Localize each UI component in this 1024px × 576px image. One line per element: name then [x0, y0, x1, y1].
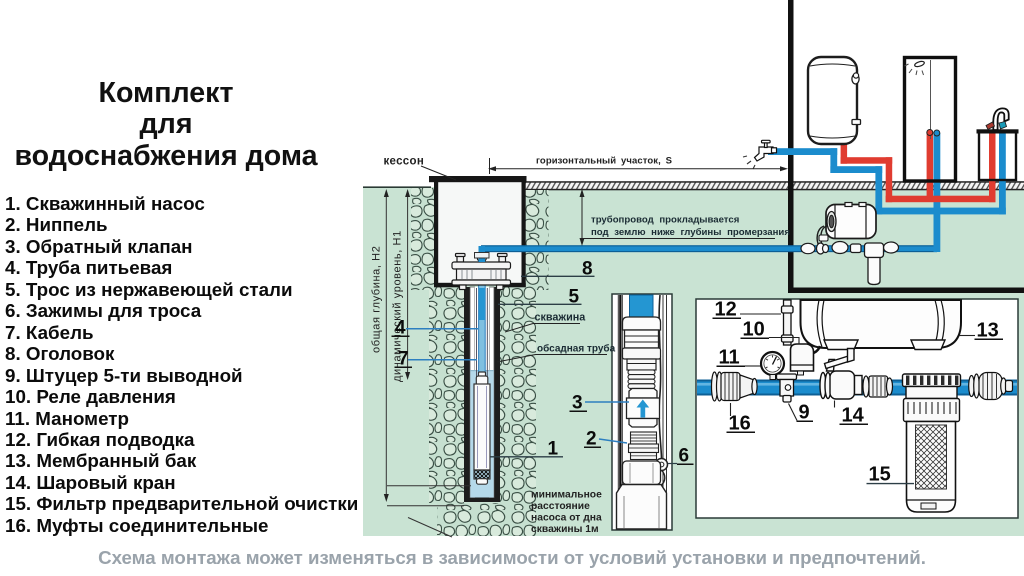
svg-text:7: 7 [398, 349, 409, 370]
svg-text:горизонтальный участок, S: горизонтальный участок, S [536, 156, 672, 167]
svg-text:обсадная труба: обсадная труба [537, 343, 616, 355]
svg-text:2: 2 [586, 429, 597, 450]
svg-text:13: 13 [977, 320, 999, 342]
svg-text:трубопровод прокладывается: трубопровод прокладывается [591, 215, 739, 226]
svg-text:скважина: скважина [535, 312, 587, 324]
svg-text:расстояние: расстояние [531, 501, 590, 512]
svg-text:под землю ниже глубины промерз: под землю ниже глубины промерзания [591, 227, 790, 238]
svg-text:14: 14 [842, 405, 865, 427]
svg-text:11: 11 [719, 347, 740, 369]
svg-text:10: 10 [743, 319, 765, 341]
svg-text:6: 6 [679, 446, 690, 467]
svg-text:скважины 1м: скважины 1м [531, 524, 599, 535]
svg-text:16: 16 [729, 413, 751, 435]
svg-text:насоса от дна: насоса от дна [531, 513, 602, 524]
svg-text:4: 4 [395, 318, 406, 339]
svg-text:кессон: кессон [384, 156, 425, 168]
svg-text:15: 15 [869, 464, 891, 486]
svg-text:9: 9 [799, 402, 810, 424]
svg-text:минимальное: минимальное [531, 490, 602, 501]
svg-text:общая глубина, Н2: общая глубина, Н2 [371, 246, 383, 353]
svg-text:3: 3 [572, 393, 583, 414]
svg-text:12: 12 [715, 299, 737, 321]
